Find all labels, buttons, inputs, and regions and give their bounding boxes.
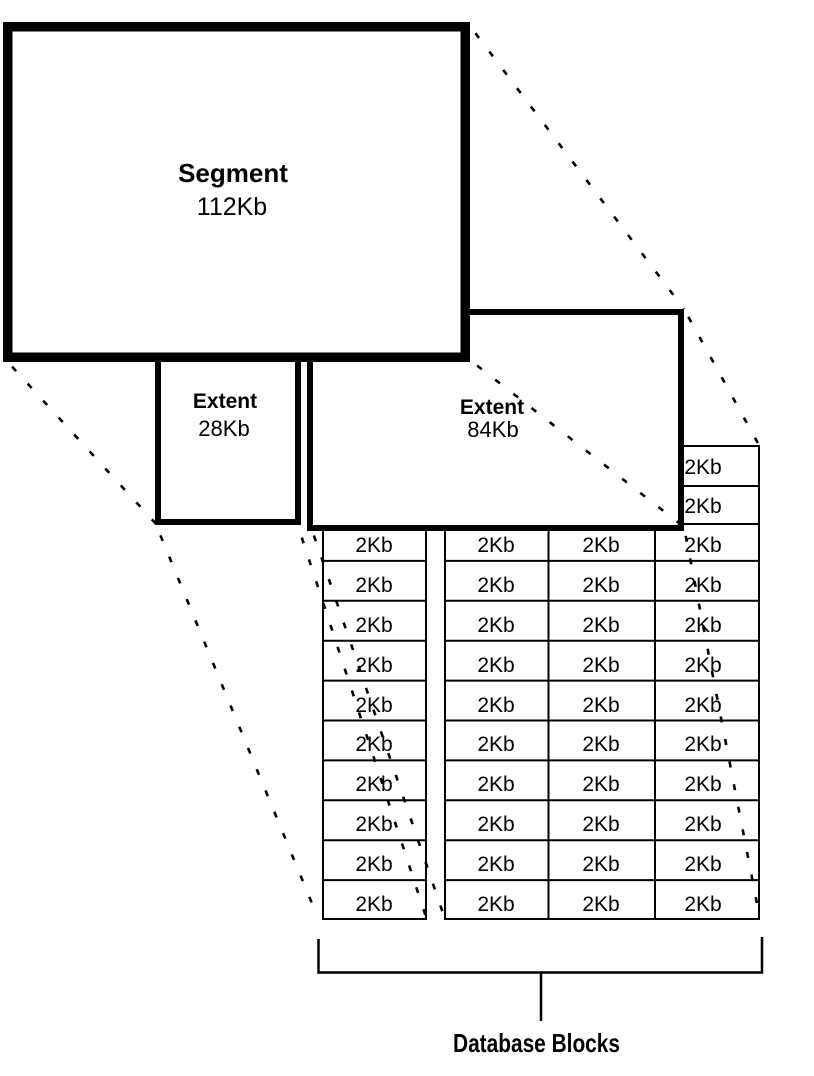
svg-text:112Kb: 112Kb: [197, 193, 267, 221]
svg-text:2Kb: 2Kb: [582, 773, 619, 796]
svg-text:2Kb: 2Kb: [477, 534, 514, 557]
svg-text:2Kb: 2Kb: [582, 853, 619, 876]
svg-text:2Kb: 2Kb: [355, 853, 392, 876]
svg-text:2Kb: 2Kb: [582, 694, 619, 717]
svg-text:2Kb: 2Kb: [684, 495, 721, 518]
svg-text:2Kb: 2Kb: [355, 813, 392, 836]
svg-text:2Kb: 2Kb: [684, 853, 721, 876]
svg-text:2Kb: 2Kb: [477, 853, 514, 876]
svg-text:2Kb: 2Kb: [684, 893, 721, 916]
svg-text:2Kb: 2Kb: [477, 574, 514, 597]
svg-text:Database Blocks: Database Blocks: [453, 1028, 620, 1058]
svg-text:2Kb: 2Kb: [684, 773, 721, 796]
svg-text:2Kb: 2Kb: [477, 813, 514, 836]
svg-text:2Kb: 2Kb: [355, 893, 392, 916]
svg-text:2Kb: 2Kb: [684, 654, 721, 677]
svg-text:Segment: Segment: [178, 158, 288, 188]
svg-text:2Kb: 2Kb: [582, 534, 619, 557]
svg-text:2Kb: 2Kb: [355, 534, 392, 557]
svg-text:2Kb: 2Kb: [355, 773, 392, 796]
svg-text:2Kb: 2Kb: [477, 654, 514, 677]
svg-text:2Kb: 2Kb: [477, 893, 514, 916]
svg-text:2Kb: 2Kb: [477, 614, 514, 637]
svg-text:Extent: Extent: [193, 390, 257, 413]
svg-text:2Kb: 2Kb: [684, 534, 721, 557]
svg-text:2Kb: 2Kb: [582, 733, 619, 756]
svg-text:2Kb: 2Kb: [355, 733, 392, 756]
svg-text:Extent: Extent: [460, 396, 524, 419]
svg-text:2Kb: 2Kb: [684, 733, 721, 756]
svg-text:2Kb: 2Kb: [684, 614, 721, 637]
svg-text:2Kb: 2Kb: [582, 654, 619, 677]
svg-text:2Kb: 2Kb: [355, 654, 392, 677]
svg-text:2Kb: 2Kb: [477, 773, 514, 796]
svg-text:2Kb: 2Kb: [477, 733, 514, 756]
svg-text:2Kb: 2Kb: [355, 574, 392, 597]
svg-text:2Kb: 2Kb: [684, 456, 721, 479]
svg-text:2Kb: 2Kb: [582, 574, 619, 597]
svg-text:84Kb: 84Kb: [467, 417, 518, 442]
svg-text:2Kb: 2Kb: [684, 813, 721, 836]
svg-text:28Kb: 28Kb: [198, 416, 249, 441]
svg-text:2Kb: 2Kb: [582, 813, 619, 836]
svg-text:2Kb: 2Kb: [582, 614, 619, 637]
svg-text:2Kb: 2Kb: [477, 694, 514, 717]
svg-text:2Kb: 2Kb: [582, 893, 619, 916]
svg-text:2Kb: 2Kb: [684, 574, 721, 597]
svg-text:2Kb: 2Kb: [355, 614, 392, 637]
